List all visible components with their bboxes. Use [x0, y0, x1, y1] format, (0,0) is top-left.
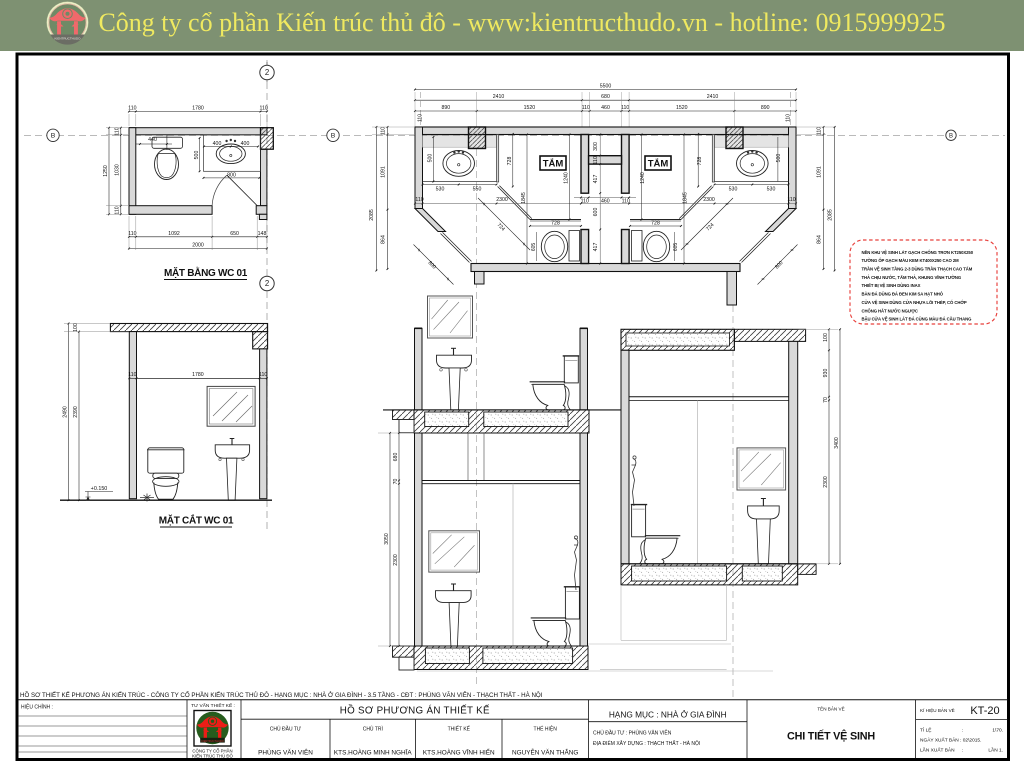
- svg-text:500: 500: [194, 151, 200, 160]
- svg-text:TRẦN VỆ SINH TẦNG 2-3 DÙNG TRẦ: TRẦN VỆ SINH TẦNG 2-3 DÙNG TRẦN THẠCH CA…: [862, 267, 973, 272]
- svg-text:930: 930: [823, 369, 829, 378]
- svg-text:110: 110: [259, 105, 267, 111]
- svg-text:800: 800: [227, 172, 236, 178]
- svg-text:650: 650: [230, 231, 239, 237]
- svg-text:605: 605: [531, 243, 537, 252]
- svg-text:THỂ HIỆN: THỂ HIỆN: [534, 725, 558, 733]
- svg-text:B: B: [331, 133, 336, 140]
- svg-text::: :: [962, 729, 963, 734]
- svg-text:TƯ VẤN THIẾT KẾ :: TƯ VẤN THIẾT KẾ :: [191, 702, 235, 709]
- svg-text:2000: 2000: [192, 243, 204, 249]
- svg-text:TƯỜNG ỐP GẠCH MÀU KEM KT400X25: TƯỜNG ỐP GẠCH MÀU KEM KT400X250 CAO 2M: [862, 258, 960, 263]
- svg-text:680: 680: [393, 453, 399, 462]
- svg-text:CHỦ ĐẦU TƯ: CHỦ ĐẦU TƯ: [270, 726, 302, 733]
- svg-text:100: 100: [73, 323, 79, 332]
- svg-text:110: 110: [115, 127, 121, 135]
- svg-text:70: 70: [823, 397, 829, 403]
- svg-text:CỬA VỆ SINH DÙNG CỬA NHỰA LÕI: CỬA VỆ SINH DÙNG CỬA NHỰA LÕI THÉP, CÓ C…: [862, 300, 967, 305]
- svg-text:2: 2: [265, 68, 269, 77]
- svg-text:100: 100: [823, 333, 829, 342]
- svg-text:LẦN 1.: LẦN 1.: [988, 747, 1003, 754]
- svg-text:1091: 1091: [816, 166, 822, 178]
- svg-text:KIẾN TRÚC THỦ ĐÔ: KIẾN TRÚC THỦ ĐÔ: [192, 754, 233, 759]
- svg-text:KTS.HOÀNG MINH NGHĨA: KTS.HOÀNG MINH NGHĨA: [334, 748, 412, 757]
- svg-text:2: 2: [265, 279, 269, 288]
- svg-text:KT-20: KT-20: [970, 705, 999, 717]
- svg-text:1845: 1845: [683, 192, 689, 204]
- svg-text:890: 890: [761, 105, 770, 111]
- svg-text:TẮM: TẮM: [543, 159, 564, 170]
- svg-text:110: 110: [418, 114, 424, 122]
- svg-text:2300: 2300: [393, 554, 399, 566]
- svg-text:800: 800: [774, 260, 784, 270]
- svg-text:110: 110: [128, 105, 136, 111]
- svg-text:2300: 2300: [703, 197, 715, 203]
- svg-text:HIỆU CHỈNH :: HIỆU CHỈNH :: [21, 703, 53, 711]
- svg-text:1\70.: 1\70.: [992, 728, 1003, 734]
- svg-text:1030: 1030: [115, 164, 121, 176]
- svg-text:400: 400: [241, 141, 250, 147]
- svg-text:CHỐNG HẮT NƯỚC NGƯỢC: CHỐNG HẮT NƯỚC NGƯỢC: [862, 308, 918, 313]
- svg-text:BÀN ĐÁ DÙNG ĐÁ ĐEN KIM SA HẠT: BÀN ĐÁ DÙNG ĐÁ ĐEN KIM SA HẠT NHỎ: [862, 292, 944, 297]
- svg-text:70: 70: [393, 479, 399, 485]
- svg-text:2300: 2300: [823, 476, 829, 488]
- svg-text:HẠNG MỤC : NHÀ Ở GIA ĐÌNH: HẠNG MỤC : NHÀ Ở GIA ĐÌNH: [609, 708, 727, 719]
- svg-text:800: 800: [427, 260, 437, 270]
- svg-text:530: 530: [729, 187, 738, 193]
- svg-text:605: 605: [673, 243, 679, 252]
- svg-text:2300: 2300: [496, 197, 508, 203]
- svg-text:1520: 1520: [676, 105, 688, 111]
- svg-text:1845: 1845: [521, 192, 527, 204]
- svg-text:680: 680: [601, 94, 610, 100]
- svg-text:550: 550: [473, 187, 482, 193]
- svg-text:724: 724: [496, 222, 506, 232]
- svg-text:KTS.HOÀNG VĨNH HIỂN: KTS.HOÀNG VĨNH HIỂN: [423, 748, 495, 757]
- svg-text:2410: 2410: [493, 94, 505, 100]
- svg-text:500: 500: [776, 154, 782, 163]
- svg-text:724: 724: [705, 222, 715, 232]
- svg-text:BẬU CỬA VỆ SINH LÁT ĐÁ CÙNG MÀ: BẬU CỬA VỆ SINH LÁT ĐÁ CÙNG MÀU ĐÁ CẦU T…: [862, 317, 973, 322]
- svg-text:460: 460: [601, 105, 610, 111]
- svg-text:3400: 3400: [834, 437, 840, 449]
- svg-text:MẶT CẮT WC 01: MẶT CẮT WC 01: [159, 514, 234, 527]
- svg-text:ĐỊA ĐIỂM XÂY DỰNG : THẠCH THẤ: ĐỊA ĐIỂM XÂY DỰNG : THẠCH THẤT - HÀ NỘI: [593, 740, 700, 747]
- svg-text:CHỦ TRÌ: CHỦ TRÌ: [363, 726, 384, 733]
- svg-text:300: 300: [593, 142, 599, 151]
- svg-text:110: 110: [593, 156, 599, 164]
- svg-text:728: 728: [651, 220, 660, 226]
- svg-text:110: 110: [786, 114, 792, 122]
- svg-text:728: 728: [697, 157, 703, 166]
- svg-text:CHI TIẾT VỆ SINH: CHI TIẾT VỆ SINH: [787, 730, 875, 743]
- svg-text:LẦN XUẤT BẢN: LẦN XUẤT BẢN: [920, 747, 955, 754]
- svg-text:KÍ HIỆU BẢN VẼ: KÍ HIỆU BẢN VẼ: [920, 706, 955, 713]
- svg-text:890: 890: [441, 105, 450, 111]
- svg-text:417: 417: [593, 175, 599, 184]
- svg-text:2490: 2490: [62, 406, 68, 418]
- svg-text:728: 728: [551, 220, 560, 226]
- svg-text:PHÙNG VĂN VIÊN: PHÙNG VĂN VIÊN: [258, 748, 313, 757]
- svg-text:1240: 1240: [564, 172, 570, 184]
- svg-text:600: 600: [593, 208, 599, 217]
- svg-text:110: 110: [380, 127, 386, 135]
- svg-text:440: 440: [148, 137, 157, 143]
- svg-text:110: 110: [415, 197, 423, 203]
- svg-text:2390: 2390: [73, 406, 79, 418]
- svg-text:1250: 1250: [103, 165, 109, 177]
- svg-text:TỈ LỆ: TỈ LỆ: [920, 726, 931, 734]
- svg-text:NỀN KHU VỆ SINH LÁT GẠCH CHỐNG: NỀN KHU VỆ SINH LÁT GẠCH CHỐNG TRƠN KT25…: [862, 250, 974, 255]
- svg-text:TÊN BẢN VẼ: TÊN BẢN VẼ: [817, 705, 844, 712]
- svg-text:110: 110: [816, 127, 822, 135]
- svg-text:110: 110: [621, 105, 629, 111]
- svg-text:1520: 1520: [524, 105, 536, 111]
- svg-text:HỒ SƠ PHƯƠNG ÁN THIẾT KẾ: HỒ SƠ PHƯƠNG ÁN THIẾT KẾ: [340, 705, 490, 717]
- svg-text:530: 530: [436, 187, 445, 193]
- svg-text:CHỦ ĐẦU TƯ : PHÙNG VĂN VIÊN: CHỦ ĐẦU TƯ : PHÙNG VĂN VIÊN: [593, 729, 672, 737]
- svg-text:864: 864: [816, 235, 822, 244]
- svg-text:110: 110: [128, 372, 136, 378]
- svg-text:1240: 1240: [640, 172, 646, 184]
- svg-text:530: 530: [767, 187, 776, 193]
- svg-text:400: 400: [213, 141, 222, 147]
- svg-text:2410: 2410: [707, 94, 719, 100]
- svg-text:+0.150: +0.150: [91, 486, 108, 492]
- svg-text:HỒ SƠ THIẾT KẾ PHƯƠNG ÁN KIẾN: HỒ SƠ THIẾT KẾ PHƯƠNG ÁN KIẾN TRÚC - CÔN…: [20, 691, 543, 699]
- svg-text:THIẾT BỊ VỆ SINH DÙNG INAX: THIẾT BỊ VỆ SINH DÙNG INAX: [862, 283, 921, 288]
- svg-text:B: B: [949, 133, 953, 139]
- svg-text:2085: 2085: [369, 209, 375, 221]
- svg-text:864: 864: [380, 235, 386, 244]
- svg-text:110: 110: [787, 197, 795, 203]
- svg-text:THẢ CHỊU NƯỚC, TẤM THẢ, KHUNG: THẢ CHỊU NƯỚC, TẤM THẢ, KHUNG VĨNH TƯỜNG: [862, 275, 962, 280]
- svg-text:1092: 1092: [168, 231, 180, 237]
- svg-text:KIENTRUCTHUDO: KIENTRUCTHUDO: [201, 739, 223, 743]
- svg-text:148: 148: [258, 231, 267, 237]
- svg-text:B: B: [51, 133, 56, 140]
- svg-text:THIẾT KẾ: THIẾT KẾ: [448, 726, 471, 733]
- svg-text:110: 110: [259, 372, 267, 378]
- svg-text:NGUYỄN VĂN THẮNG: NGUYỄN VĂN THẮNG: [512, 748, 578, 757]
- svg-text:110: 110: [128, 231, 136, 237]
- svg-text:1780: 1780: [192, 105, 204, 111]
- svg-text:500: 500: [427, 154, 433, 163]
- svg-text:5500: 5500: [600, 83, 612, 89]
- svg-text:MẶT BẰNG WC 01: MẶT BẰNG WC 01: [164, 266, 248, 279]
- svg-text::: :: [962, 749, 963, 754]
- svg-text:1091: 1091: [380, 166, 386, 178]
- svg-text:417: 417: [593, 243, 599, 252]
- svg-text:110: 110: [582, 105, 590, 111]
- svg-text:1780: 1780: [192, 372, 204, 378]
- svg-text:3050: 3050: [384, 533, 390, 545]
- svg-text:728: 728: [507, 157, 513, 166]
- svg-text:TẮM: TẮM: [648, 159, 669, 170]
- svg-text:NGÀY XUẤT BẢN : 02\2015.: NGÀY XUẤT BẢN : 02\2015.: [920, 737, 981, 744]
- svg-text:110: 110: [115, 206, 121, 214]
- svg-text:2085: 2085: [827, 209, 833, 221]
